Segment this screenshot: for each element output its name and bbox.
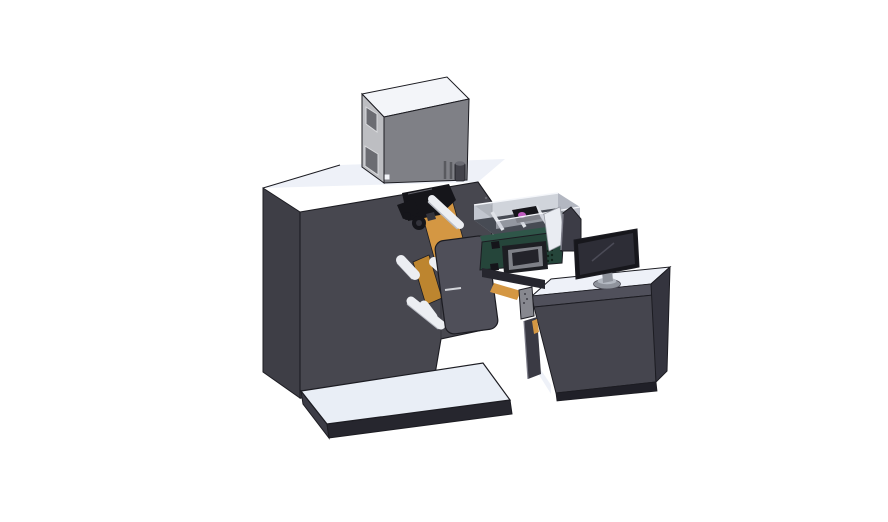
control-cabinet — [362, 77, 469, 183]
filter-cylinder-cap — [455, 161, 465, 165]
printer-vent-6 — [551, 259, 553, 261]
tower-screw-a — [485, 197, 487, 199]
tower-left-face — [263, 188, 300, 398]
head-gear-small — [403, 212, 411, 220]
printer-vent-3 — [547, 255, 549, 257]
cabinet-indicator-plate — [385, 175, 390, 180]
printer-vent-5 — [547, 260, 549, 262]
head-gear-hub — [416, 220, 422, 226]
bracket-hole-2 — [526, 298, 528, 300]
bracket-hole-3 — [523, 302, 525, 304]
machine-render — [0, 0, 888, 522]
desk-front-face — [534, 295, 656, 393]
printer-connector-upper — [491, 241, 500, 249]
cad-viewport — [0, 0, 888, 522]
support-bracket — [519, 287, 534, 319]
printer-vent-4 — [551, 254, 553, 256]
bracket-hole-1 — [524, 293, 526, 295]
